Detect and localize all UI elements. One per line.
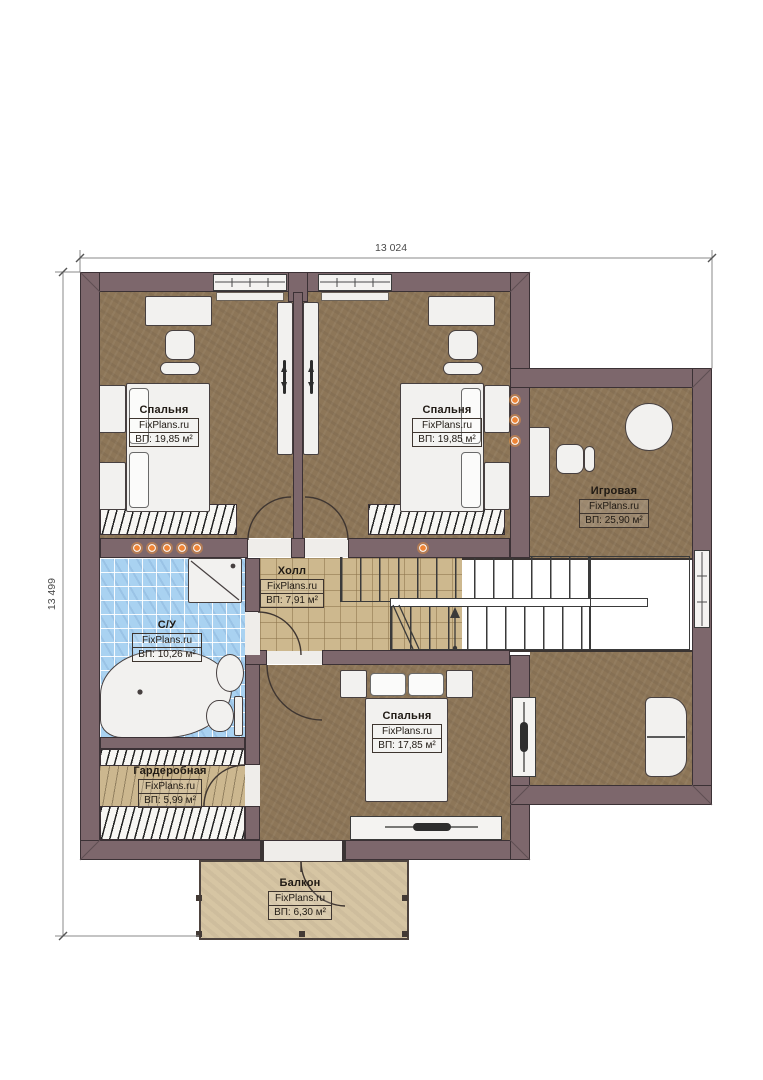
wall-wing-top: [510, 368, 712, 388]
wall-bath-bed3: [245, 655, 260, 765]
room-area: ВП: 19,85 м²: [413, 432, 480, 446]
room-area: ВП: 19,85 м²: [130, 432, 197, 446]
wall-wing-bottom: [510, 785, 712, 805]
chair-seat: [448, 330, 478, 360]
window-bed3-playroom: [512, 697, 536, 777]
room-area: ВП: 5,99 м²: [139, 793, 201, 807]
tall-cabinet: [277, 302, 293, 455]
room-area: ВП: 10,26 м²: [133, 647, 200, 661]
room-area: ВП: 25,90 м²: [580, 513, 647, 527]
window-top-2: [318, 274, 392, 291]
wall-left-main: [80, 272, 100, 860]
round-table: [625, 403, 673, 451]
brand: FixPlans.ru: [413, 419, 480, 432]
chair-seat: [165, 330, 195, 360]
label-bedroom-top-right: Спальня FixPlans.ru ВП: 19,85 м²: [401, 404, 493, 447]
sofa-cushion-divider: [647, 736, 685, 738]
room-name: Холл: [278, 565, 306, 577]
door-opening-bedroom3: [267, 651, 322, 664]
label-bedroom-top-left: Спальня FixPlans.ru ВП: 19,85 м²: [118, 404, 210, 447]
toilet-bowl: [206, 700, 234, 732]
chair-seat: [556, 444, 584, 474]
room-name: Спальня: [383, 710, 432, 722]
label-balcony: Балкон FixPlans.ru ВП: 6,30 м²: [254, 877, 346, 920]
pillow: [129, 452, 149, 508]
window-sill: [216, 292, 284, 301]
wall-divider: [293, 292, 303, 558]
desk: [145, 296, 212, 326]
pillow: [408, 673, 444, 696]
shower: [188, 558, 242, 603]
room-name: Спальня: [140, 404, 189, 416]
balcony-post: [299, 931, 305, 937]
stair-flight-up: [340, 556, 590, 602]
balcony-post: [196, 931, 202, 937]
room-area: ВП: 7,91 м²: [261, 593, 323, 607]
wardrobe-shelving-bottom: [100, 806, 245, 840]
door-opening-balcony: [262, 841, 345, 861]
brand: FixPlans.ru: [139, 780, 201, 793]
brand: FixPlans.ru: [580, 500, 647, 513]
label-bathroom: С/У FixPlans.ru ВП: 10,26 м²: [124, 619, 210, 662]
floor-plan: Спальня FixPlans.ru ВП: 19,85 м² Спальня…: [0, 0, 763, 1080]
room-info-box: FixPlans.ru ВП: 17,85 м²: [372, 724, 441, 753]
room-info-box: FixPlans.ru ВП: 7,91 м²: [260, 579, 324, 608]
room-info-box: FixPlans.ru ВП: 25,90 м²: [579, 499, 648, 528]
brand: FixPlans.ru: [261, 580, 323, 593]
room-name: Гардеробная: [133, 765, 206, 777]
label-playroom: Игровая FixPlans.ru ВП: 25,90 м²: [568, 485, 660, 528]
balcony-post: [196, 895, 202, 901]
room-area: ВП: 17,85 м²: [373, 738, 440, 752]
label-hall: Холл FixPlans.ru ВП: 7,91 м²: [249, 565, 335, 608]
room-name: С/У: [158, 619, 176, 631]
room-info-box: FixPlans.ru ВП: 10,26 м²: [132, 633, 201, 662]
wall-bed2-hall: [348, 538, 510, 558]
brand: FixPlans.ru: [373, 725, 440, 738]
chair-back: [443, 362, 483, 375]
room-name: Спальня: [423, 404, 472, 416]
label-bedroom-bottom: Спальня FixPlans.ru ВП: 17,85 м²: [361, 710, 453, 753]
pillow: [370, 673, 406, 696]
wall-bath-wardrobe: [100, 737, 245, 749]
brand: FixPlans.ru: [130, 419, 197, 432]
stair-landing: [590, 556, 690, 650]
door-opening-wardrobe: [245, 765, 260, 806]
door-opening-bathroom: [245, 612, 260, 655]
label-wardrobe: Гардеробная FixPlans.ru ВП: 5,99 м²: [122, 765, 218, 808]
nightstand: [446, 670, 473, 698]
toilet-tank: [234, 696, 243, 736]
brand: FixPlans.ru: [269, 892, 331, 905]
chair-back: [584, 446, 595, 472]
desk: [428, 296, 495, 326]
dimension-height: 13 499: [46, 578, 58, 610]
wardrobe-shelving-top: [100, 749, 245, 766]
chair-back: [160, 362, 200, 375]
wall-wardrobe-bed3: [245, 806, 260, 840]
room-info-box: FixPlans.ru ВП: 5,99 м²: [138, 779, 202, 808]
wall-bed1-bath: [100, 538, 248, 558]
sink: [216, 654, 244, 692]
window-bedroom-bottom: [350, 816, 502, 840]
dimension-width: 13 024: [375, 242, 407, 254]
window-wing-right: [694, 550, 710, 628]
pillow: [461, 452, 481, 508]
wall-doors-stub: [291, 538, 305, 558]
balcony-post: [402, 895, 408, 901]
balcony-post: [402, 931, 408, 937]
stair-flight-low: [390, 604, 590, 650]
room-info-box: FixPlans.ru ВП: 19,85 м²: [412, 418, 481, 447]
nightstand: [340, 670, 367, 698]
room-area: ВП: 6,30 м²: [269, 905, 331, 919]
door-opening-bedroom2: [305, 539, 348, 557]
door-opening-bedroom1: [248, 539, 291, 557]
window-sill: [321, 292, 389, 301]
room-info-box: FixPlans.ru ВП: 19,85 м²: [129, 418, 198, 447]
wall-right-main-upper: [510, 272, 530, 558]
wall-hall-bed3-right: [322, 650, 510, 665]
room-info-box: FixPlans.ru ВП: 6,30 м²: [268, 891, 332, 920]
nightstand: [98, 462, 126, 510]
brand: FixPlans.ru: [133, 634, 200, 647]
window-top-1: [213, 274, 287, 291]
tall-cabinet: [303, 302, 319, 455]
nightstand: [484, 462, 510, 510]
room-name: Игровая: [591, 485, 637, 497]
room-name: Балкон: [280, 877, 321, 889]
